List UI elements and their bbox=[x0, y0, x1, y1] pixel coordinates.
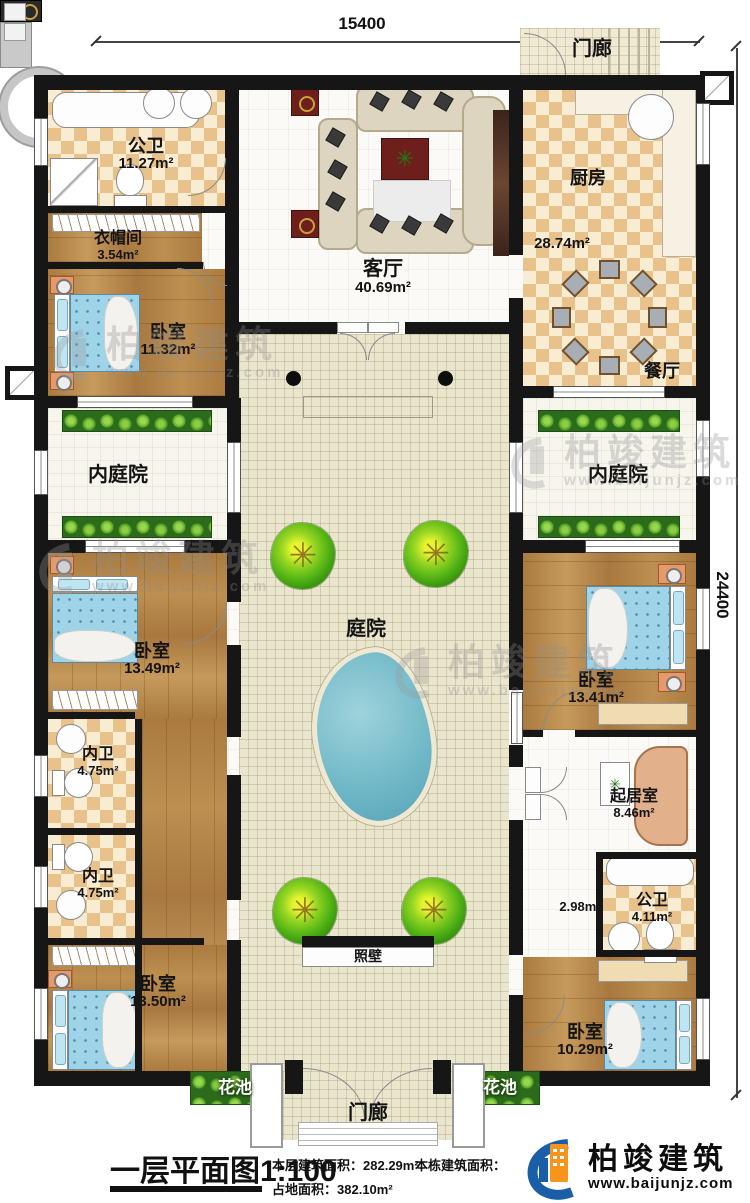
building-area-text: 本栋建筑面积： bbox=[415, 1155, 506, 1174]
land-area-text: 占地面积：382.10m² bbox=[272, 1179, 393, 1198]
pillow-icon bbox=[58, 579, 90, 590]
courtyard-steps bbox=[303, 396, 433, 418]
column-dot bbox=[286, 371, 301, 386]
pillow-icon bbox=[673, 630, 684, 664]
dining-chair-icon bbox=[599, 260, 620, 279]
wall-segment bbox=[405, 322, 509, 334]
dimension-right-label: 24400 bbox=[712, 570, 732, 620]
window bbox=[34, 988, 48, 1040]
tree-icon: ✳ bbox=[402, 878, 466, 944]
room-label: 餐厅 bbox=[644, 361, 680, 381]
door-leaf bbox=[337, 322, 368, 333]
window bbox=[227, 442, 241, 513]
room-label: 内庭院 bbox=[588, 464, 648, 486]
plant-strip bbox=[538, 410, 680, 432]
dining-chair-icon bbox=[552, 307, 571, 328]
title-underline bbox=[110, 1186, 262, 1192]
window bbox=[511, 692, 523, 744]
wall-segment bbox=[509, 820, 523, 955]
pillow-icon bbox=[673, 591, 684, 625]
room-label: 门廊 bbox=[572, 38, 612, 60]
wall-segment bbox=[225, 90, 239, 400]
steps bbox=[298, 1122, 438, 1146]
wall-segment bbox=[601, 852, 696, 859]
dimension-line-right bbox=[736, 48, 738, 1098]
wall-segment bbox=[665, 386, 696, 398]
nightstand-icon bbox=[48, 970, 72, 988]
nightstand-icon bbox=[50, 276, 74, 294]
wall-segment bbox=[285, 1060, 303, 1094]
wall-pier bbox=[700, 71, 734, 105]
sink-icon bbox=[143, 87, 175, 119]
land-area-label: 占地面积： bbox=[272, 1182, 337, 1197]
room-label: 卧室13.41m² bbox=[568, 670, 624, 707]
wall-segment bbox=[34, 90, 48, 1086]
wall-segment bbox=[142, 938, 204, 945]
wall-segment bbox=[227, 940, 241, 1071]
dimension-top-label: 15400 bbox=[338, 14, 385, 33]
window bbox=[34, 450, 48, 495]
porch-top-columns bbox=[608, 28, 656, 75]
wall-segment bbox=[48, 938, 135, 945]
floor-area-label: 本层建筑面积： bbox=[272, 1158, 363, 1173]
window bbox=[696, 588, 710, 650]
wall-segment bbox=[523, 386, 553, 398]
porch-column bbox=[452, 1063, 485, 1148]
wall-segment bbox=[227, 775, 241, 900]
nightstand-icon bbox=[658, 672, 686, 692]
pillow-icon bbox=[55, 995, 66, 1027]
wall-segment bbox=[509, 545, 523, 690]
tree-branches: ✳ bbox=[273, 878, 337, 944]
window bbox=[509, 442, 523, 513]
wall-segment bbox=[48, 396, 77, 408]
window bbox=[77, 396, 193, 408]
room-label: 客厅40.69m² bbox=[355, 258, 411, 297]
room-label: 衣帽间3.54m² bbox=[94, 230, 142, 262]
wall-segment bbox=[509, 90, 523, 255]
room-label: 厨房 bbox=[570, 168, 606, 188]
door-leaf bbox=[525, 794, 541, 820]
window bbox=[585, 540, 680, 553]
window bbox=[696, 998, 710, 1060]
plant-strip bbox=[62, 516, 212, 538]
nightstand-icon bbox=[50, 556, 74, 574]
side-table-icon bbox=[291, 210, 319, 238]
floor-plan: 15400 24400 bbox=[0, 0, 750, 1203]
bed-sheet bbox=[104, 296, 138, 370]
dining-chair-icon bbox=[648, 307, 667, 328]
kitchen-sink-icon bbox=[0, 22, 32, 68]
pillow-icon bbox=[57, 336, 68, 368]
wall-segment bbox=[433, 1060, 451, 1094]
door-leaf bbox=[525, 767, 541, 793]
wall-pier bbox=[5, 366, 39, 400]
window bbox=[696, 420, 710, 477]
room-label: 卧室10.29m² bbox=[557, 1022, 613, 1059]
tree-icon: ✳ bbox=[271, 523, 335, 589]
shower-icon bbox=[50, 158, 98, 206]
bed-sheet bbox=[588, 588, 628, 668]
brand-logo: 柏竣建筑 www.baijunjz.com bbox=[524, 1136, 733, 1200]
room-label: 28.74m² bbox=[534, 236, 590, 253]
tree-branches: ✳ bbox=[271, 523, 335, 589]
wall-segment bbox=[48, 540, 85, 553]
bathtub-icon bbox=[606, 856, 694, 886]
coffee-table-icon: ✳ bbox=[381, 138, 429, 180]
window bbox=[696, 103, 710, 165]
room-label: 公卫11.27m² bbox=[118, 136, 173, 173]
plant-strip bbox=[538, 516, 680, 538]
wall-segment bbox=[509, 513, 523, 547]
wall-segment bbox=[48, 206, 227, 213]
logo-site-text: www.baijunjz.com bbox=[588, 1175, 733, 1192]
land-area-value: 382.10m² bbox=[337, 1182, 393, 1197]
wall-segment bbox=[575, 730, 696, 737]
tree-branches: ✳ bbox=[402, 878, 466, 944]
tv-wall bbox=[493, 110, 509, 256]
wall-segment bbox=[34, 75, 710, 90]
room-label: 2.98m² bbox=[559, 900, 600, 915]
column-dot bbox=[438, 371, 453, 386]
bathtub-icon bbox=[52, 92, 200, 128]
wall-segment bbox=[509, 995, 523, 1071]
tree-icon: ✳ bbox=[404, 521, 468, 587]
room-label: 卧室11.32m² bbox=[140, 322, 195, 359]
door-leaf bbox=[368, 322, 399, 333]
screen-wall-cap bbox=[302, 936, 434, 947]
sink-icon bbox=[180, 87, 212, 119]
room-label: 内庭院 bbox=[88, 464, 148, 486]
window bbox=[85, 540, 185, 553]
pillow-icon bbox=[679, 1004, 690, 1032]
room-label: 庭院 bbox=[346, 618, 386, 640]
wall-segment bbox=[509, 745, 523, 767]
wall-segment bbox=[596, 950, 696, 957]
porch-column bbox=[250, 1063, 283, 1148]
wall-segment bbox=[193, 396, 239, 408]
room-label: 花池 bbox=[483, 1078, 517, 1097]
wall-segment bbox=[523, 540, 585, 553]
tree-branches: ✳ bbox=[404, 521, 468, 587]
nightstand-icon bbox=[50, 372, 74, 390]
wardrobe-icon bbox=[52, 946, 138, 966]
floor-area-text: 本层建筑面积：282.29m² bbox=[272, 1155, 419, 1174]
wall-segment bbox=[239, 322, 337, 334]
building-area-label: 本栋建筑面积： bbox=[415, 1158, 506, 1173]
logo-brand-text: 柏竣建筑 bbox=[588, 1144, 733, 1176]
toilet-icon bbox=[644, 918, 676, 964]
wall-segment bbox=[509, 298, 523, 398]
wall-segment bbox=[185, 540, 239, 553]
floor-area-value: 282.29m² bbox=[363, 1158, 419, 1173]
window bbox=[34, 866, 48, 908]
wall-segment bbox=[680, 540, 696, 553]
room-label: 内卫4.75m² bbox=[77, 868, 118, 900]
wall-segment bbox=[135, 719, 142, 1072]
room-label: 内卫4.75m² bbox=[77, 746, 118, 778]
plan-title-text: 一层平面图 bbox=[110, 1155, 260, 1188]
room-label: 起居室8.46m² bbox=[610, 788, 658, 820]
dining-chair-icon bbox=[599, 356, 620, 375]
room-label: 卧室13.49m² bbox=[124, 641, 180, 678]
wall-segment bbox=[48, 828, 135, 835]
logo-icon bbox=[524, 1136, 584, 1200]
plant-strip bbox=[62, 410, 212, 432]
wall-segment bbox=[48, 712, 135, 719]
pillow-icon bbox=[96, 579, 128, 590]
pillow-icon bbox=[55, 1033, 66, 1065]
tree-icon: ✳ bbox=[273, 878, 337, 944]
side-table-icon bbox=[291, 88, 319, 116]
pillow-icon bbox=[679, 1036, 690, 1064]
toilet-icon bbox=[52, 842, 92, 870]
room-label: 照壁 bbox=[354, 949, 382, 965]
nightstand-icon bbox=[658, 564, 686, 584]
room-label: 卧室13.50m² bbox=[130, 974, 186, 1011]
room-label: 花池 bbox=[218, 1078, 252, 1097]
window bbox=[34, 118, 48, 166]
wall-segment bbox=[523, 730, 543, 737]
window bbox=[34, 755, 48, 797]
room-label: 公卫4.11m² bbox=[632, 892, 672, 924]
wall-segment bbox=[227, 645, 241, 737]
wall-segment bbox=[227, 545, 241, 602]
wall-segment bbox=[509, 398, 523, 442]
pillow-icon bbox=[57, 299, 68, 331]
window bbox=[553, 386, 665, 398]
room-label: 门廊 bbox=[348, 1102, 388, 1124]
round-table-icon bbox=[628, 94, 674, 140]
wardrobe-icon bbox=[52, 690, 138, 710]
